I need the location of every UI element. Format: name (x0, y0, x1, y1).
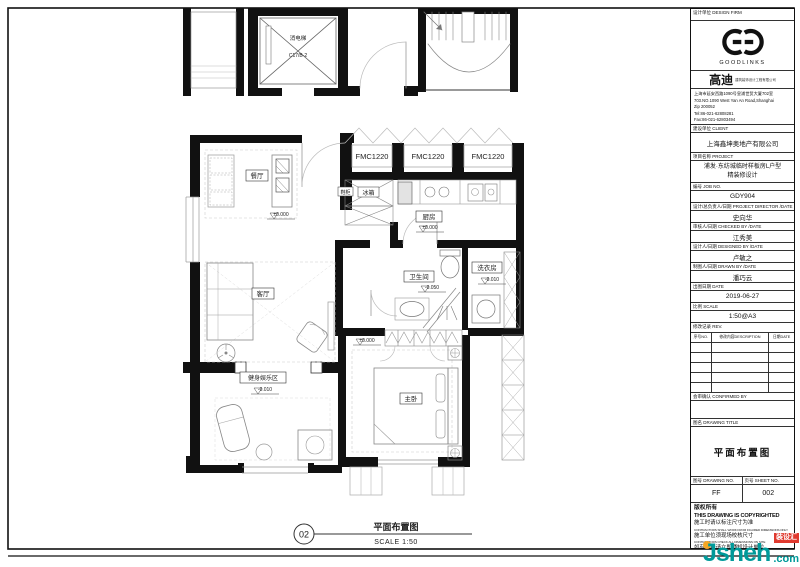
no-sheet-values: FF 002 (691, 485, 794, 503)
scale-value: 1:50@A3 (691, 311, 794, 322)
level-kitchen: ±0.000 (416, 225, 444, 232)
drawing-no-value: FF (691, 485, 743, 502)
date-value: 2019-06-27 (691, 291, 794, 302)
room-label-shoe: 鞋柜 (340, 189, 350, 196)
living-furniture (205, 262, 335, 362)
brand-cn-row: 高迪 建筑装饰设计工程有限公司 (691, 71, 794, 89)
drafter-value: 潘巧云 (691, 271, 794, 282)
rev-row (691, 363, 794, 373)
drafter-label: 制图人/日期 DRAWN BY /DATE (691, 263, 794, 270)
client-label: 建设单位 CLIENT (691, 125, 794, 132)
checker-value: 江秀美 (691, 231, 794, 242)
watermark-badge: 装设汇 (774, 533, 799, 543)
designer-label: 设计人/日期 DESIGNED BY /DATE (691, 243, 794, 250)
watermark: Jsheh .com 装设汇 (697, 536, 799, 566)
wall-piers (235, 362, 322, 373)
project-value: 浦发·东纺城临时样板房L户型 精装修设计 (691, 161, 794, 182)
detail-number: 02 (299, 530, 309, 540)
designer-value: 卢敏之 (691, 251, 794, 262)
director-label: 设计/总负责人/日期 PROJECT DIRECTOR /DATE (691, 203, 794, 210)
dining-furniture (205, 150, 297, 218)
rev-label: 修改记录 REV. (691, 323, 794, 330)
rev-col-no: 序号NO. (691, 333, 712, 342)
sheet-no-value: 002 (743, 485, 795, 502)
client-value: 上海鑫坤奥地产有限公司 (691, 133, 794, 152)
project-label: 项目名称 PROJECT (691, 153, 794, 160)
level-bathroom: -0.050 (418, 285, 446, 292)
wardrobe (385, 330, 462, 346)
elevator-code-label: C17/B-2 (289, 53, 308, 59)
date-label: 出图日期 DATE (691, 283, 794, 290)
room-label-bathroom: 卫生间 (409, 272, 429, 281)
room-label-laundry: 洗衣房 (477, 263, 497, 272)
room-label-fridge: 冰箱 (362, 189, 374, 197)
watermark-text: Jsheh (703, 541, 770, 566)
copyright-line: 版权所有 (694, 505, 794, 513)
brand-cn-sub: 建筑装饰设计工程有限公司 (735, 77, 776, 82)
room-label-dining: 餐厅 (251, 171, 265, 180)
rev-row (691, 353, 794, 363)
rev-col-date: 日期DATE (769, 333, 794, 342)
address-block: 上海市延安西路1090号皇浦世贸大厦702室 703.NO.1090 West … (691, 89, 794, 125)
svg-text:FMC1220: FMC1220 (412, 152, 445, 161)
watermark-tld: .com (773, 553, 799, 565)
east-shaft (502, 335, 524, 460)
job-value: GDY904 (691, 191, 794, 202)
caption-title: 平面布置图 (373, 521, 418, 532)
drawing-caption: 02 平面布置图 SCALE 1:50 (294, 521, 472, 546)
design-firm-row: 设计单位 DESIGN FIRM (691, 9, 794, 21)
level-master: ±0.000 (353, 338, 381, 345)
room-label-living: 客厅 (257, 289, 271, 298)
rev-row (691, 343, 794, 353)
project-line1: 浦发·东纺城临时样板房L户型 (704, 163, 781, 172)
rev-col-desc: 修改内容DESCRIPTION (712, 333, 770, 342)
brand-name: GOODLINKS (719, 60, 765, 66)
sheet-no-label: 页号 SHEET NO. (743, 477, 795, 484)
copyright-line: 施工时请以标注尺寸为准 (694, 520, 794, 528)
caption-scale: SCALE 1:50 (374, 539, 418, 546)
drawing-title-label: 图名 DRAWING TITLE (691, 419, 794, 426)
checker-label: 审核人/日期 CHECKED BY /DATE (691, 223, 794, 230)
confirmed-box (691, 401, 794, 419)
copyright-line: THIS DRAWING IS COPYRIGHTED (694, 513, 794, 520)
room-label-fitness: 健身娱乐区 (248, 374, 278, 382)
drawing-no-label: 图号 DRAWING NO. (691, 477, 743, 484)
svg-text:FMC1220: FMC1220 (472, 152, 505, 161)
doors (302, 143, 437, 316)
room-label-master: 主卧 (405, 394, 419, 403)
job-label: 编号 JOB NO. (691, 183, 794, 190)
logo-row: GOODLINKS (691, 21, 794, 71)
scale-label: 比例 SCALE (691, 303, 794, 310)
svg-text:FMC1220: FMC1220 (356, 152, 389, 161)
rev-row (691, 383, 794, 393)
design-firm-label: 设计单位 DESIGN FIRM (691, 9, 794, 16)
director-value: 史向华 (691, 211, 794, 222)
kitchen-fittings (398, 180, 516, 204)
no-sheet-labels: 图号 DRAWING NO. 页号 SHEET NO. (691, 477, 794, 485)
room-label-kitchen: 厨房 (423, 212, 436, 221)
drawing-title-value: 平面布置图 (691, 427, 794, 476)
copyright-line: CONTRACTORS SHALL WORK FROM FIGURED DIME… (694, 528, 794, 533)
level-fitness: -0.010 (251, 387, 279, 394)
floor-plan-drawing: 消电梯 C17/B-2 (0, 0, 800, 565)
sheet-frame (8, 8, 794, 556)
rev-columns: 序号NO. 修改内容DESCRIPTION 日期DATE (691, 333, 794, 343)
level-laundry: -0.010 (478, 277, 506, 284)
rev-row (691, 373, 794, 383)
bathroom-fittings (395, 250, 460, 332)
window-tags: FMC1220 FMC1220 FMC1220 (356, 152, 505, 161)
elevator-label: 消电梯 (290, 34, 307, 42)
confirmed-label: 会审确认 CONFIRMED BY (691, 393, 794, 400)
goodlinks-logo-icon (715, 25, 771, 59)
brand-cn: 高迪 (709, 71, 733, 88)
title-block: 设计单位 DESIGN FIRM GOODLINKS 高迪 建筑装饰设计工程有限… (690, 8, 795, 549)
top-service-block: 消电梯 C17/B-2 (183, 8, 518, 96)
project-line2: 精装修设计 (727, 172, 757, 181)
fitness-furniture (214, 398, 332, 460)
